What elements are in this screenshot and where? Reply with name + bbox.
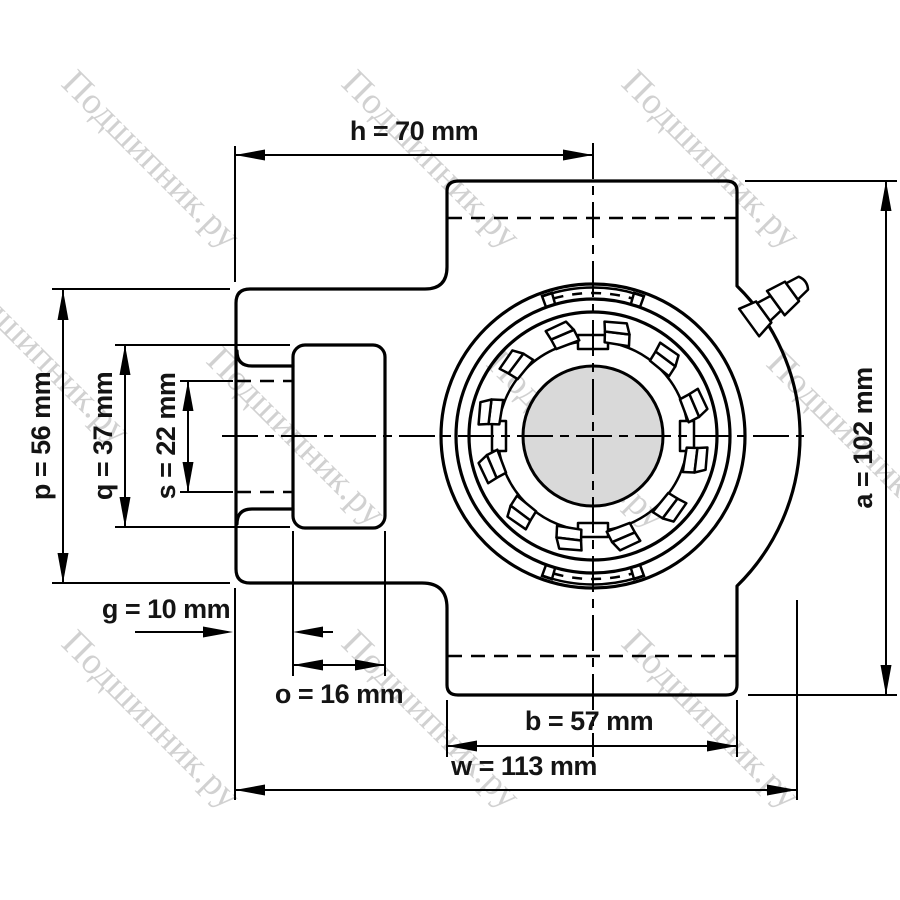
watermark: Подшипник.ру (54, 62, 249, 257)
watermark: Подшипник.ру (614, 62, 809, 257)
dimension-p-label: p = 56 mm (26, 372, 56, 500)
dimension-h-label: h = 70 mm (350, 116, 478, 146)
bearing-unit-drawing: Подшипник.ру Подшипник.ру Подшипник.ру П… (0, 0, 900, 900)
dimension-h: h = 70 mm (235, 116, 593, 282)
watermark: Подшипник.ру (759, 342, 900, 537)
dimension-s: s = 22 mm (151, 373, 233, 500)
watermark-layer: Подшипник.ру Подшипник.ру Подшипник.ру П… (0, 62, 900, 817)
watermark: Подшипник.ру (334, 62, 529, 257)
dimension-s-label: s = 22 mm (151, 373, 181, 500)
dimension-w-label: w = 113 mm (450, 751, 597, 781)
dimension-a: a = 102 mm (745, 181, 897, 695)
dimension-b-label: b = 57 mm (525, 706, 653, 736)
watermark: Подшипник.ру (334, 622, 529, 817)
technical-drawing-page: Подшипник.ру Подшипник.ру Подшипник.ру П… (0, 0, 900, 900)
dimension-g: g = 10 mm (102, 594, 333, 638)
slot-channel-bottom (237, 509, 293, 524)
dimension-g-label: g = 10 mm (102, 594, 230, 624)
dimension-p: p = 56 mm (26, 289, 230, 583)
dimension-q-label: q = 37 mm (88, 372, 118, 500)
dimension-a-label: a = 102 mm (848, 367, 878, 508)
watermark: Подшипник.ру (54, 622, 249, 817)
dimension-o-label: o = 16 mm (275, 679, 403, 709)
dimension-o: o = 16 mm (275, 531, 403, 709)
